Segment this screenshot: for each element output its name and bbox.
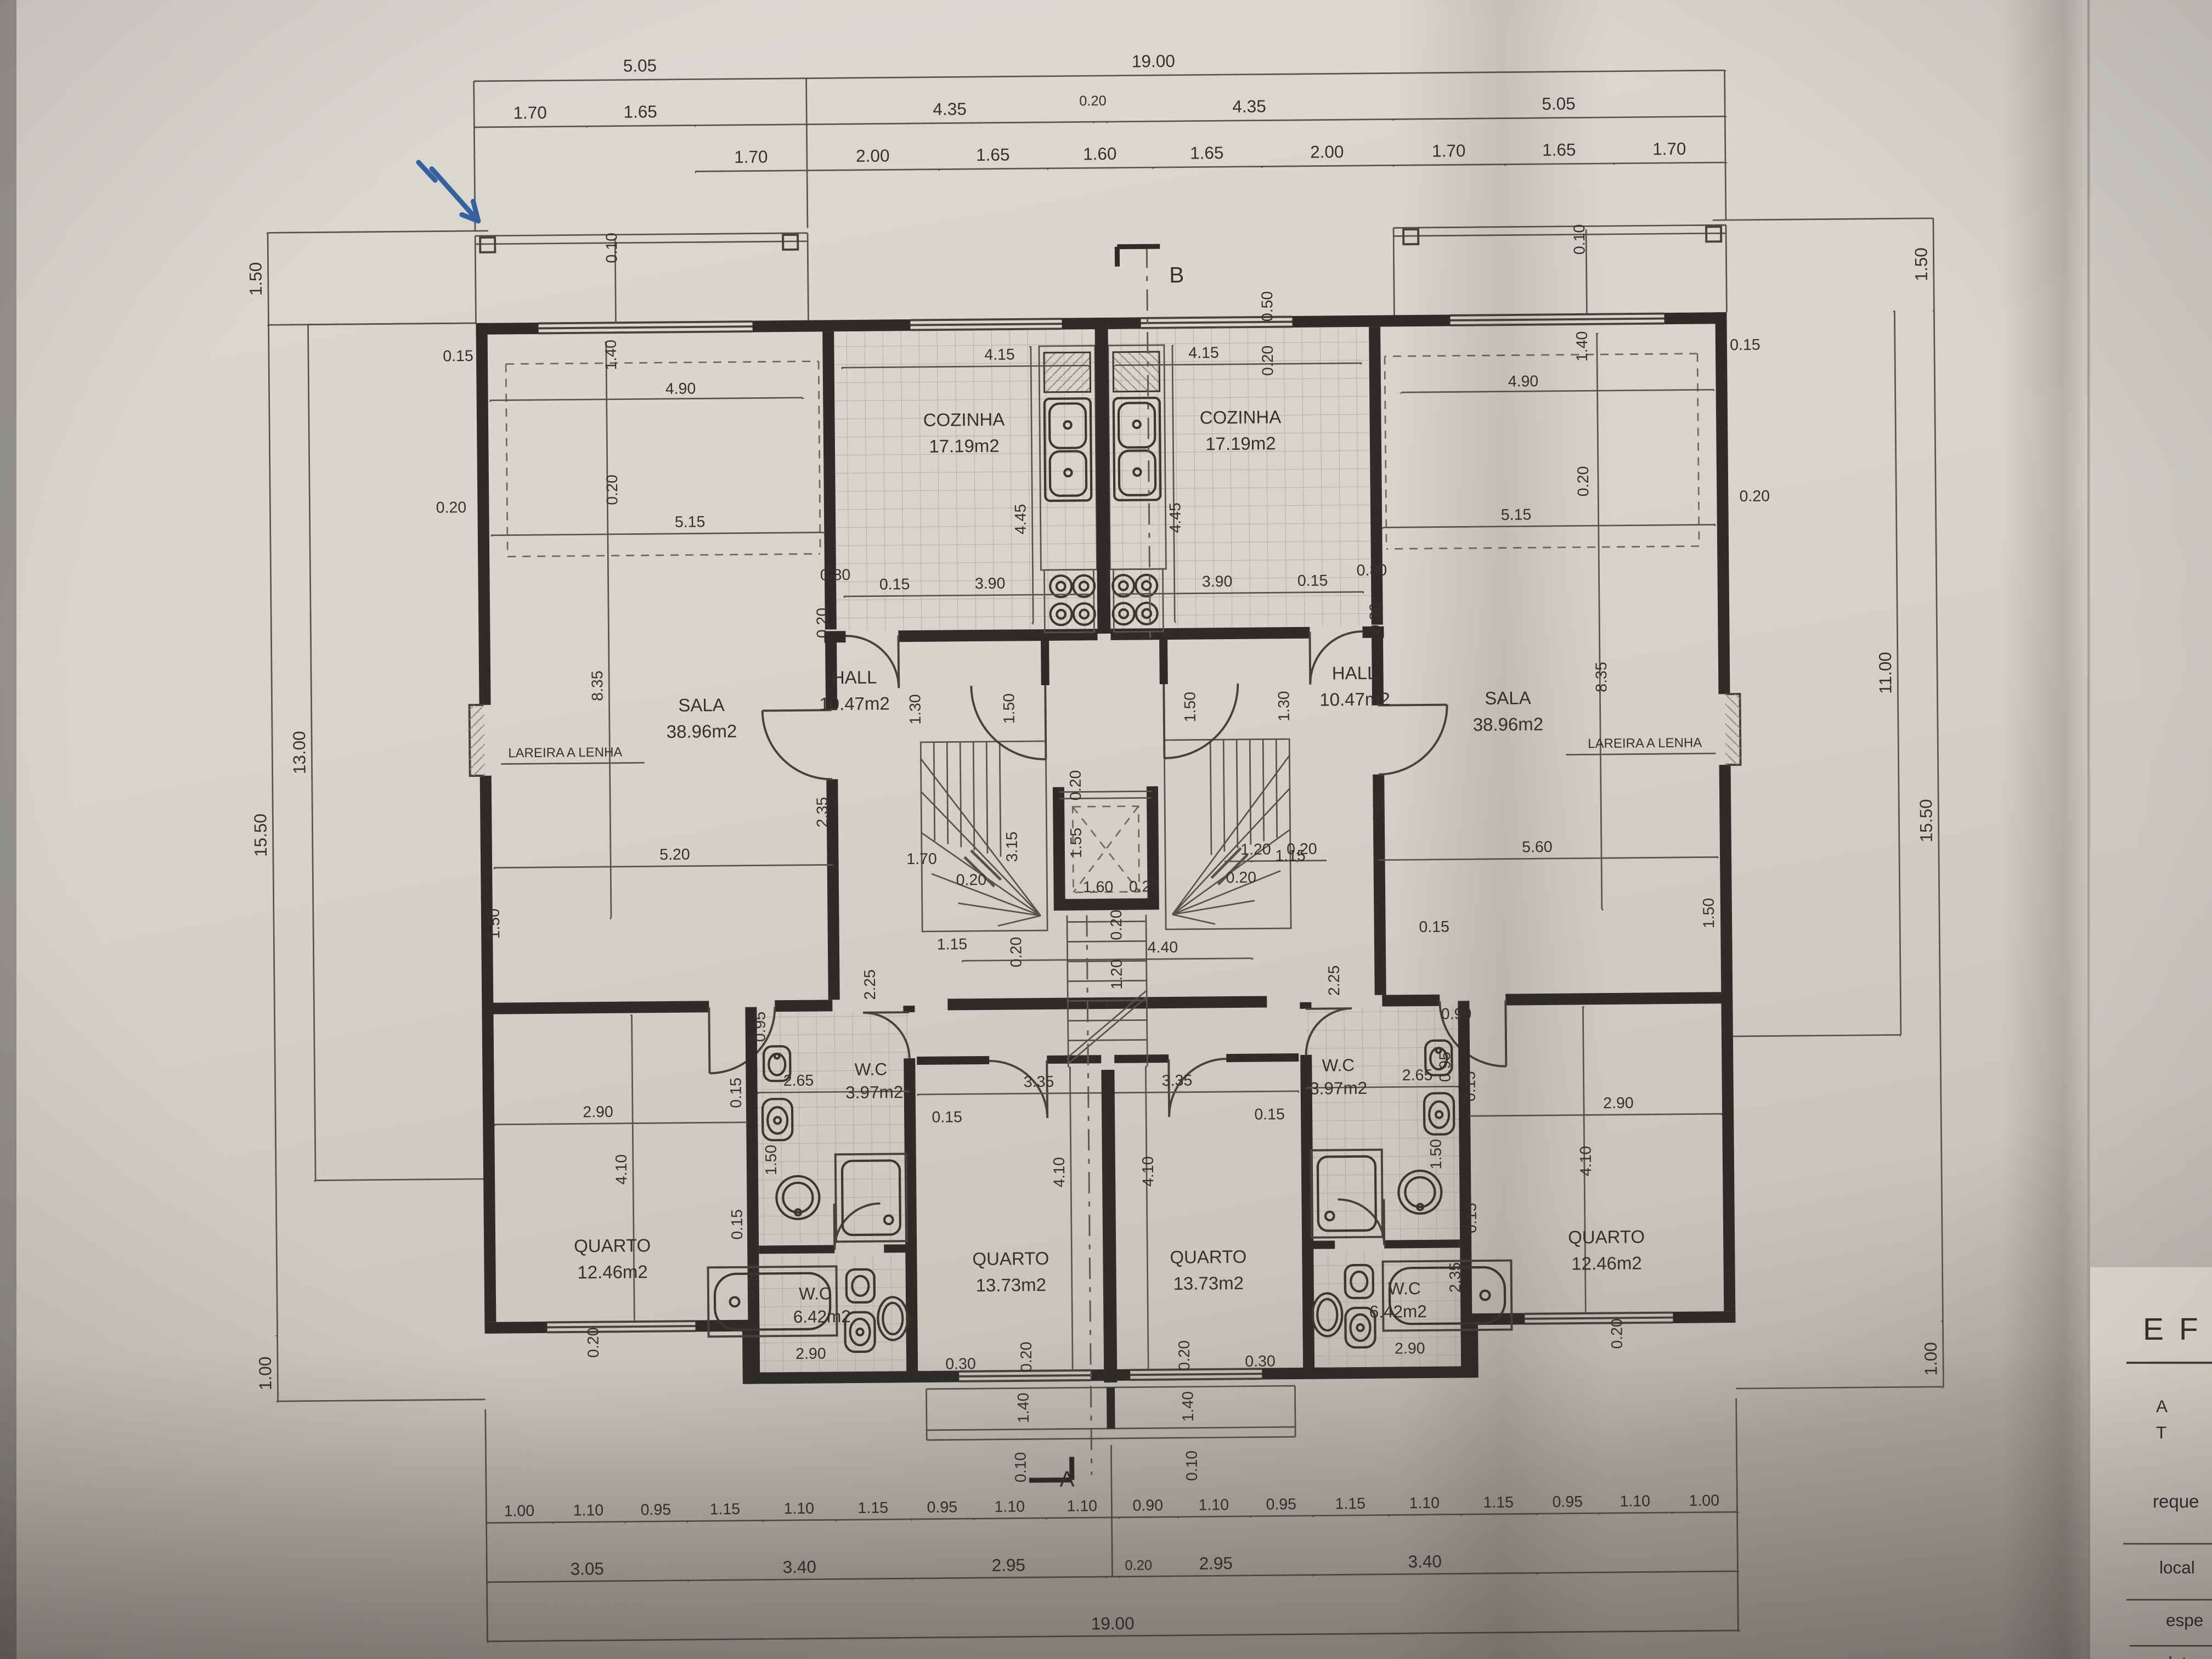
dim: 1.50 bbox=[763, 1144, 780, 1175]
dim-left: 15.50 bbox=[250, 814, 270, 857]
dim-quarto: 4.10 bbox=[1051, 1157, 1068, 1188]
dim-bottom: 0.95 bbox=[640, 1501, 671, 1519]
fireplace-label: LAREIRA A LENHA bbox=[1588, 736, 1702, 752]
room-area-quarto-center: 13.73m2 bbox=[1173, 1273, 1244, 1294]
dim-lift: 1.55 bbox=[1068, 828, 1085, 859]
dim: 1.20 bbox=[1108, 959, 1126, 990]
dim-bottom: 1.00 bbox=[1689, 1492, 1719, 1509]
dim-corridor: 1.20 bbox=[1240, 840, 1271, 858]
dim-top: 2.00 bbox=[856, 145, 890, 166]
dim-bottom: 1.10 bbox=[783, 1500, 814, 1517]
dim: 1.50 bbox=[1181, 692, 1199, 723]
title-block: E F A T reque local espe data bbox=[2090, 1267, 2212, 1659]
fireplace-label: LAREIRA A LENHA bbox=[508, 745, 622, 761]
dim-kitchen: 4.15 bbox=[984, 346, 1015, 363]
dim-top: 1.65 bbox=[623, 101, 657, 122]
dim-bath: 2.35 bbox=[1446, 1262, 1464, 1293]
dim-wall: 0.15 bbox=[879, 575, 910, 593]
dim-bottom: 3.40 bbox=[1408, 1551, 1442, 1572]
dim-bottom: 1.00 bbox=[504, 1502, 535, 1520]
dim: 0.30 bbox=[945, 1355, 976, 1373]
room-area-sala: 38.96m2 bbox=[667, 721, 737, 742]
dim-wall: 0.15 bbox=[1463, 1203, 1480, 1233]
dim-top: 1.65 bbox=[1542, 139, 1576, 160]
dim-sala-height: 8.35 bbox=[589, 670, 606, 701]
floor-plan-drawing: 5.05 19.00 1.70 1.65 4.35 0.20 4.35 5.05… bbox=[0, 0, 2212, 1659]
dim-bottom: 1.10 bbox=[1409, 1494, 1440, 1512]
dim-kitchen: 3.90 bbox=[975, 575, 1006, 592]
title-block-partial: A bbox=[2156, 1396, 2168, 1416]
dim: 0.30 bbox=[1245, 1352, 1276, 1370]
dim-stair: 1.15 bbox=[1275, 847, 1306, 865]
dim-wall: 0.15 bbox=[1297, 572, 1328, 589]
dim-door: 0.80 bbox=[820, 566, 851, 584]
dim-bottom-total: 19.00 bbox=[1091, 1613, 1135, 1634]
title-block-field-requerente: reque bbox=[2153, 1491, 2199, 1511]
dim-stair: 1.70 bbox=[906, 850, 937, 868]
dim-bottom: 1.10 bbox=[1620, 1492, 1650, 1510]
dim: 3.15 bbox=[1003, 832, 1021, 862]
dim-right: 1.50 bbox=[1911, 247, 1931, 281]
dim-quarto: 2.90 bbox=[583, 1103, 613, 1121]
dim-wall: 0.20 bbox=[1226, 869, 1256, 887]
dim-wall: 0.20 bbox=[814, 608, 831, 639]
dim-wall: 0.15 bbox=[729, 1209, 746, 1240]
dim-bath: 2.65 bbox=[1402, 1066, 1433, 1084]
photographed-floor-plan: 5.05 19.00 1.70 1.65 4.35 0.20 4.35 5.05… bbox=[0, 0, 2212, 1659]
dim: 1.50 bbox=[1000, 693, 1018, 724]
dim-bottom: 0.95 bbox=[927, 1498, 957, 1516]
room-label-wc-large: W.C bbox=[799, 1283, 832, 1304]
dim-balcony: 0.10 bbox=[1012, 1452, 1029, 1483]
dim-wall: 0.15 bbox=[932, 1108, 962, 1126]
room-label-quarto-corner: QUARTO bbox=[1568, 1226, 1645, 1247]
dim-balcony-length: 4.90 bbox=[665, 380, 696, 397]
dim-bottom: 1.10 bbox=[573, 1502, 603, 1519]
room-label-wc-small: W.C bbox=[854, 1059, 887, 1079]
dim-wall: 0.20 bbox=[603, 475, 621, 505]
dim-balcony-rail: 0.10 bbox=[603, 233, 620, 263]
title-block-partial: T bbox=[2156, 1423, 2166, 1442]
dim-balcony: 1.40 bbox=[1180, 1391, 1197, 1422]
dim-sala: 5.60 bbox=[1522, 838, 1553, 856]
dim-top: 2.00 bbox=[1310, 142, 1344, 162]
dim-bath: 2.90 bbox=[795, 1345, 826, 1362]
dim-bottom: 3.40 bbox=[782, 1557, 816, 1577]
dim-top: 1.70 bbox=[1432, 140, 1466, 161]
dim-wall: 0.15 bbox=[1419, 918, 1449, 936]
room-label-wc-large: W.C bbox=[1388, 1278, 1421, 1299]
room-label-cozinha: COZINHA bbox=[1200, 407, 1282, 427]
dim-balcony-depth: 1.40 bbox=[1573, 331, 1591, 362]
room-label-quarto-corner: QUARTO bbox=[574, 1235, 651, 1256]
dim-bottom: 0.20 bbox=[1125, 1558, 1152, 1573]
room-area-wc-small: 3.97m2 bbox=[1310, 1078, 1367, 1098]
room-area-hall: 10.47m2 bbox=[819, 693, 890, 714]
dim: 1.50 bbox=[1700, 898, 1718, 929]
dim-bottom: 1.15 bbox=[1335, 1495, 1365, 1513]
dim-wall: 0.15 bbox=[443, 347, 473, 365]
dim-top: 1.65 bbox=[1190, 143, 1224, 163]
dim-top: 1.70 bbox=[513, 103, 547, 123]
room-label-wc-small: W.C bbox=[1322, 1055, 1355, 1075]
dim-top: 1.70 bbox=[734, 146, 768, 167]
room-label-hall: HALL bbox=[1332, 663, 1378, 684]
room-label-sala: SALA bbox=[678, 695, 725, 715]
dim-bottom: 0.95 bbox=[1266, 1496, 1296, 1513]
dim: 2.25 bbox=[1325, 965, 1343, 996]
dim-quarto: 3.35 bbox=[1024, 1073, 1054, 1091]
dim-right: 11.00 bbox=[1875, 652, 1895, 694]
room-label-sala: SALA bbox=[1485, 687, 1531, 708]
dim-wall: 0.20 bbox=[584, 1327, 602, 1358]
room-label-cozinha: COZINHA bbox=[923, 409, 1005, 430]
dim-bottom: 1.10 bbox=[1198, 1496, 1229, 1514]
dim: 0.95 bbox=[1436, 1052, 1454, 1082]
dim-left: 13.00 bbox=[289, 731, 309, 774]
dim: 1.30 bbox=[906, 694, 924, 725]
title-block-field-especialidade: espe bbox=[2166, 1610, 2203, 1630]
dim-section: 0.50 bbox=[1259, 291, 1276, 322]
dim-right: 15.50 bbox=[1916, 799, 1936, 842]
dim-top: 5.05 bbox=[1542, 93, 1576, 114]
dim-left: 1.50 bbox=[245, 262, 266, 296]
section-marker-b: B bbox=[1169, 262, 1184, 287]
dim-right: 1.00 bbox=[1921, 1342, 1941, 1376]
dim-wall: 0.20 bbox=[956, 871, 986, 889]
dim-quarto: 4.10 bbox=[1577, 1146, 1595, 1177]
dim-wall: 0.20 bbox=[1007, 937, 1025, 968]
dim-wall: 0.20 bbox=[1575, 466, 1592, 497]
dim-wall: 0.15 bbox=[1461, 1071, 1479, 1102]
dim-top: 19.00 bbox=[1132, 51, 1175, 71]
dim-bottom: 0.95 bbox=[1552, 1493, 1583, 1510]
dim-wall: 0.20 bbox=[1176, 1340, 1193, 1371]
dim-top: 1.65 bbox=[976, 144, 1010, 165]
dim-top: 4.35 bbox=[933, 99, 967, 119]
room-label-quarto-center: QUARTO bbox=[1170, 1246, 1246, 1267]
room-area-quarto-corner: 12.46m2 bbox=[577, 1261, 648, 1282]
dim: 0.95 bbox=[751, 1012, 769, 1042]
dim-sala-width: 5.15 bbox=[675, 513, 706, 531]
dim-top: 1.70 bbox=[1652, 139, 1686, 159]
dim-wall: 0.15 bbox=[1254, 1105, 1285, 1123]
dim-kitchen: 4.45 bbox=[1166, 503, 1184, 533]
dim-balcony: 0.10 bbox=[1183, 1451, 1200, 1481]
dim-wall: 0.15 bbox=[727, 1077, 745, 1108]
dim-sala: 5.20 bbox=[659, 846, 690, 864]
dim-bottom: 0.90 bbox=[1132, 1497, 1163, 1514]
dim-bottom: 2.95 bbox=[991, 1555, 1025, 1575]
room-area-wc-small: 3.97m2 bbox=[845, 1082, 903, 1102]
room-label-quarto-center: QUARTO bbox=[972, 1248, 1049, 1269]
dim-wall: 0.20 bbox=[1608, 1318, 1626, 1349]
dim-quarto: 3.35 bbox=[1162, 1072, 1193, 1090]
dim: 2.35 bbox=[1370, 792, 1387, 823]
dim-bath: 2.90 bbox=[1395, 1340, 1425, 1357]
dim-bottom: 2.95 bbox=[1199, 1553, 1233, 1573]
dim-top: 5.05 bbox=[623, 55, 657, 76]
dim-door: 0.80 bbox=[1357, 562, 1387, 579]
dim-lift: 1.60 bbox=[1083, 878, 1114, 896]
dim-sala-height: 8.35 bbox=[1593, 662, 1610, 692]
dim: 1.50 bbox=[1427, 1139, 1445, 1170]
title-block-field-data: data bbox=[2163, 1653, 2197, 1659]
room-area-cozinha: 17.19m2 bbox=[1205, 433, 1276, 454]
dim-section: 0.20 bbox=[1259, 346, 1277, 376]
dim-balcony-rail: 0.10 bbox=[1571, 224, 1588, 255]
dim-top: 4.35 bbox=[1232, 96, 1266, 116]
dim-corridor: 4.40 bbox=[1148, 939, 1178, 956]
dim: 2.35 bbox=[814, 797, 831, 828]
room-label-hall: HALL bbox=[832, 667, 877, 688]
dim: 1.15 bbox=[937, 935, 968, 953]
dim-top: 0.20 bbox=[1079, 93, 1107, 109]
dim: 1.50 bbox=[486, 909, 503, 939]
dim-quarto: 2.90 bbox=[1603, 1094, 1634, 1112]
dim-bottom: 1.15 bbox=[857, 1499, 888, 1517]
dim-balcony-depth: 1.40 bbox=[602, 340, 620, 370]
dim-sala-width: 5.15 bbox=[1501, 506, 1532, 523]
room-area-wc-large: 6.42m2 bbox=[793, 1306, 851, 1327]
dim: 1.30 bbox=[1275, 691, 1293, 721]
room-area-cozinha: 17.19m2 bbox=[929, 436, 1000, 456]
dim-bottom: 1.10 bbox=[1066, 1497, 1097, 1515]
dim-kitchen: 4.15 bbox=[1188, 344, 1219, 362]
dim-wall: 0.20 bbox=[1108, 910, 1125, 940]
room-area-wc-large: 6.42m2 bbox=[1369, 1301, 1427, 1322]
dim-bottom: 1.15 bbox=[1483, 1494, 1514, 1511]
dim-kitchen: 4.45 bbox=[1012, 504, 1029, 534]
dim-balcony-length: 4.90 bbox=[1508, 373, 1539, 390]
title-block-field-local: local bbox=[2159, 1558, 2195, 1577]
dim-wall: 0.20 bbox=[1067, 770, 1085, 801]
dim-wall: 0.20 bbox=[1739, 487, 1770, 505]
paper-background bbox=[0, 0, 2212, 1659]
room-area-sala: 38.96m2 bbox=[1473, 714, 1544, 735]
dim-bottom: 1.10 bbox=[994, 1498, 1025, 1515]
dim-wall: 0.20 bbox=[1367, 603, 1384, 634]
section-marker-a: A bbox=[1059, 1466, 1074, 1492]
dim-balcony: 1.40 bbox=[1015, 1392, 1032, 1423]
room-area-hall: 10.47m2 bbox=[1319, 689, 1390, 709]
dim-bath: 2.65 bbox=[783, 1072, 814, 1090]
dim-wall: 0.20 bbox=[1018, 1341, 1035, 1372]
dim-kitchen: 3.90 bbox=[1202, 573, 1233, 590]
title-block-heading: E F bbox=[2143, 1312, 2202, 1347]
dim-bottom: 3.05 bbox=[570, 1559, 604, 1579]
dim-quarto: 4.10 bbox=[1139, 1156, 1157, 1187]
dim-bath: 2.35 bbox=[746, 1268, 763, 1299]
dim: 2.25 bbox=[861, 969, 879, 1000]
dim-top: 1.60 bbox=[1083, 144, 1117, 164]
dim-wall: 0.15 bbox=[1730, 336, 1760, 354]
room-area-quarto-corner: 12.46m2 bbox=[1571, 1253, 1642, 1274]
dim-left: 1.00 bbox=[255, 1357, 275, 1391]
dim-quarto: 4.10 bbox=[613, 1154, 630, 1185]
dim-bottom: 1.15 bbox=[709, 1500, 740, 1518]
dim-wall: 0.20 bbox=[1129, 878, 1160, 895]
dim: 0.90 bbox=[1441, 1005, 1472, 1023]
room-area-quarto-center: 13.73m2 bbox=[975, 1274, 1046, 1295]
dim-wall: 0.20 bbox=[436, 499, 467, 516]
